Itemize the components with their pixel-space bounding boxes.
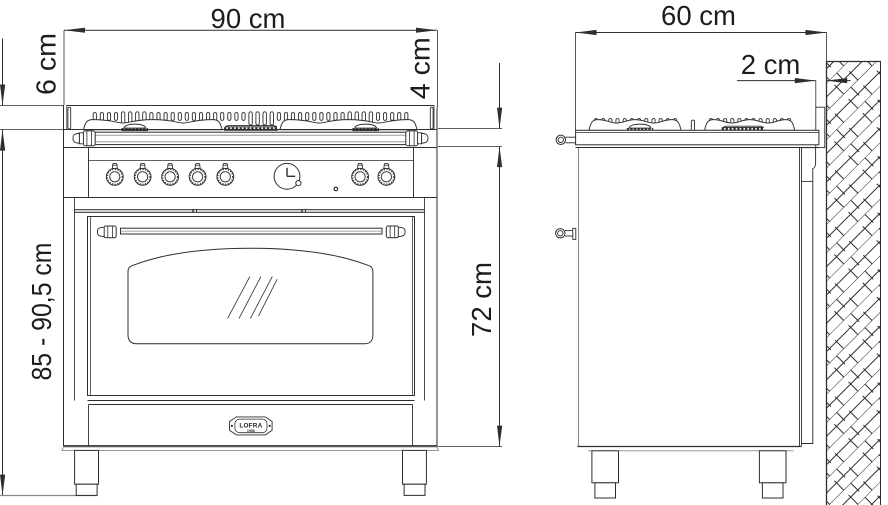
svg-text:1956: 1956 [247, 429, 255, 433]
svg-text:2 cm: 2 cm [741, 49, 801, 80]
svg-text:72 cm: 72 cm [466, 262, 497, 337]
svg-text:60 cm: 60 cm [661, 0, 736, 31]
svg-text:4 cm: 4 cm [405, 37, 436, 99]
svg-text:85 - 90,5 cm: 85 - 90,5 cm [26, 243, 57, 381]
svg-text:90 cm: 90 cm [211, 3, 286, 34]
svg-text:6 cm: 6 cm [31, 33, 62, 95]
